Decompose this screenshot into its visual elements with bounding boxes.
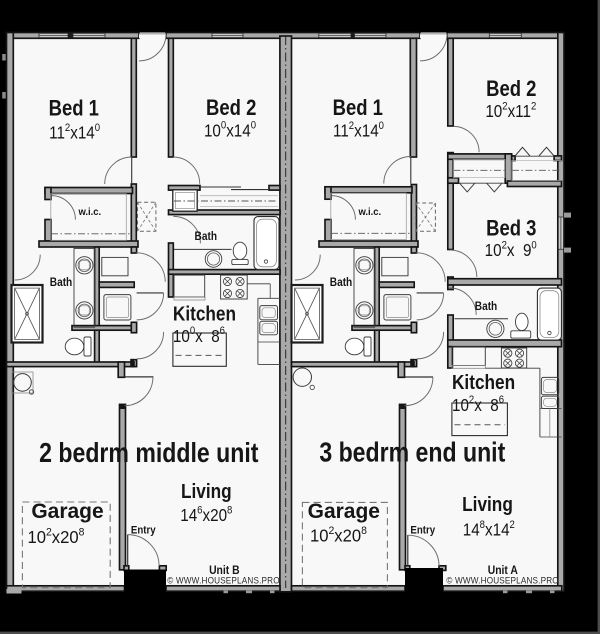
svg-text:Bath: Bath <box>330 276 352 289</box>
svg-text:102x 86: 102x 86 <box>452 395 504 415</box>
svg-text:Bed 1: Bed 1 <box>49 97 99 121</box>
svg-text:© WWW.HOUSEPLANS.PRO: © WWW.HOUSEPLANS.PRO <box>446 575 558 586</box>
svg-text:112x140: 112x140 <box>333 120 384 140</box>
svg-text:112x140: 112x140 <box>49 123 100 143</box>
svg-text:w.i.c.: w.i.c. <box>357 207 381 219</box>
svg-text:Bath: Bath <box>50 276 72 289</box>
svg-text:2 bedrm middle unit: 2 bedrm middle unit <box>39 438 259 468</box>
svg-text:Bed 2: Bed 2 <box>486 77 536 101</box>
svg-text:Kitchen: Kitchen <box>173 303 236 326</box>
svg-text:Entry: Entry <box>131 525 156 537</box>
svg-text:102x112: 102x112 <box>485 101 536 121</box>
svg-text:Garage: Garage <box>31 500 103 523</box>
svg-text:Bed 2: Bed 2 <box>206 96 256 120</box>
svg-text:Living: Living <box>462 494 513 517</box>
svg-text:100x140: 100x140 <box>204 120 256 140</box>
svg-text:Bed 3: Bed 3 <box>486 217 536 241</box>
svg-text:146x208: 146x208 <box>180 505 232 525</box>
svg-text:Bed 1: Bed 1 <box>333 96 383 120</box>
svg-text:w.i.c.: w.i.c. <box>77 207 101 219</box>
svg-text:102x 90: 102x 90 <box>485 240 537 260</box>
svg-text:© WWW.HOUSEPLANS.PRO: © WWW.HOUSEPLANS.PRO <box>167 575 279 586</box>
svg-text:100x 86: 100x 86 <box>173 326 225 346</box>
svg-text:102x208: 102x208 <box>310 525 367 546</box>
svg-text:Entry: Entry <box>410 525 435 537</box>
svg-text:Garage: Garage <box>308 500 380 523</box>
svg-text:Bath: Bath <box>195 230 217 243</box>
svg-text:Kitchen: Kitchen <box>452 371 515 394</box>
svg-text:Living: Living <box>181 481 232 504</box>
svg-text:Bath: Bath <box>475 300 497 313</box>
svg-text:3 bedrm end unit: 3 bedrm end unit <box>319 438 505 468</box>
svg-text:148x142: 148x142 <box>463 519 515 539</box>
svg-text:102x208: 102x208 <box>28 526 85 547</box>
